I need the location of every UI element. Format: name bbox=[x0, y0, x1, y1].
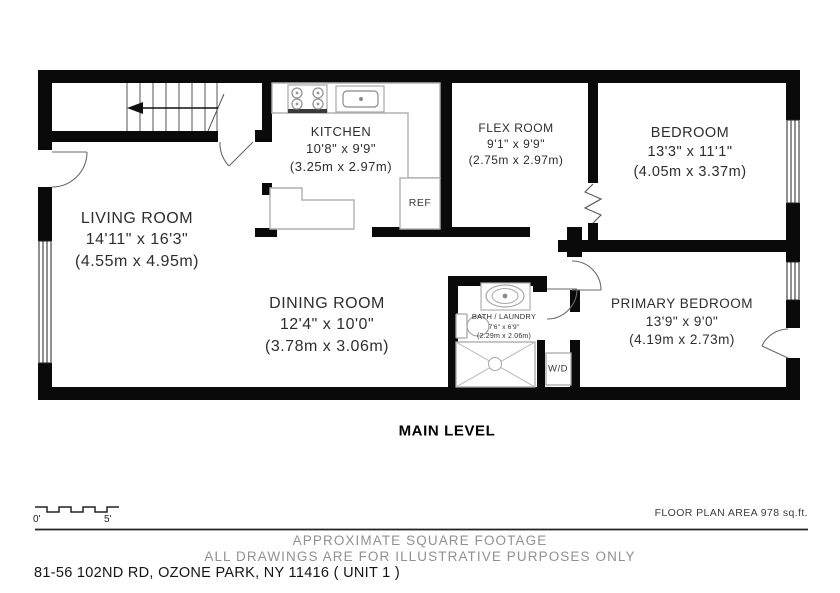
flex-bedroom-opening-break bbox=[585, 184, 601, 223]
room-label-primary-bedroom: PRIMARY BEDROOM 13'9" x 9'0" (4.19m x 2.… bbox=[611, 295, 753, 349]
room-dimensions-metric: (4.05m x 3.37m) bbox=[633, 163, 746, 182]
property-address: 81-56 102ND RD, OZONE PARK, NY 11416 ( U… bbox=[34, 565, 400, 581]
room-label-living-room: LIVING ROOM 14'11" x 16'3" (4.55m x 4.95… bbox=[75, 208, 199, 272]
refrigerator-label: REF bbox=[409, 197, 432, 209]
scale-start-label: 0' bbox=[33, 514, 40, 525]
room-label-bath-laundry: BATH / LAUNDRY 7'6" x 6'9" (2.29m x 2.06… bbox=[472, 312, 536, 342]
exterior-side-door bbox=[762, 329, 788, 358]
room-dimensions-imperial: 7'6" x 6'9" bbox=[472, 323, 536, 332]
primary-bedroom-door bbox=[572, 261, 601, 290]
room-name: DINING ROOM bbox=[265, 293, 389, 314]
room-dimensions-metric: (2.75m x 2.97m) bbox=[469, 153, 564, 169]
room-dimensions-imperial: 9'1" x 9'9" bbox=[469, 137, 564, 153]
floor-plan-area-note: FLOOR PLAN AREA 978 sq.ft. bbox=[655, 507, 808, 519]
stair-arrow-icon bbox=[127, 102, 143, 114]
staircase bbox=[127, 83, 224, 131]
kitchen-peninsula-counter bbox=[270, 188, 354, 229]
room-dimensions-imperial: 10'8" x 9'9" bbox=[290, 140, 392, 157]
room-dimensions-metric: (4.55m x 4.95m) bbox=[75, 251, 199, 272]
room-name: FLEX ROOM bbox=[469, 121, 564, 137]
disclaimer-line-2: ALL DRAWINGS ARE FOR ILLUSTRATIVE PURPOS… bbox=[0, 549, 840, 564]
room-name: LIVING ROOM bbox=[75, 208, 199, 229]
entry-door bbox=[52, 152, 87, 187]
room-label-flex-room: FLEX ROOM 9'1" x 9'9" (2.75m x 2.97m) bbox=[469, 121, 564, 169]
bath-sink-icon bbox=[481, 283, 530, 310]
room-name: KITCHEN bbox=[290, 123, 392, 140]
level-title: MAIN LEVEL bbox=[399, 423, 496, 440]
scale-end-label: 5' bbox=[104, 514, 111, 525]
room-dimensions-imperial: 12'4" x 10'0" bbox=[265, 314, 389, 335]
room-dimensions-imperial: 13'3" x 11'1" bbox=[633, 143, 746, 162]
bedroom-window bbox=[787, 120, 799, 203]
kitchen-door bbox=[220, 142, 253, 166]
kitchen-sink-icon bbox=[336, 86, 384, 112]
room-label-bedroom: BEDROOM 13'3" x 11'1" (4.05m x 3.37m) bbox=[633, 124, 746, 182]
room-dimensions-metric: (4.19m x 2.73m) bbox=[611, 331, 753, 349]
primary-bedroom-window bbox=[787, 262, 799, 300]
room-dimensions-imperial: 14'11" x 16'3" bbox=[75, 229, 199, 250]
room-name: BEDROOM bbox=[633, 124, 746, 143]
room-dimensions-metric: (2.29m x 2.06m) bbox=[472, 332, 536, 342]
room-name: PRIMARY BEDROOM bbox=[611, 295, 753, 313]
stove-icon bbox=[288, 85, 327, 113]
scale-bar bbox=[35, 507, 119, 512]
room-label-dining-room: DINING ROOM 12'4" x 10'0" (3.78m x 3.06m… bbox=[265, 293, 389, 357]
floor-plan-page: LIVING ROOM 14'11" x 16'3" (4.55m x 4.95… bbox=[0, 0, 840, 593]
room-dimensions-metric: (3.25m x 2.97m) bbox=[290, 158, 392, 175]
room-name: BATH / LAUNDRY bbox=[472, 312, 536, 323]
living-room-window bbox=[39, 241, 51, 363]
disclaimer-line-1: APPROXIMATE SQUARE FOOTAGE bbox=[0, 533, 840, 548]
room-dimensions-metric: (3.78m x 3.06m) bbox=[265, 336, 389, 357]
washer-dryer-label: W/D bbox=[548, 364, 568, 375]
room-dimensions-imperial: 13'9" x 9'0" bbox=[611, 313, 753, 331]
room-label-kitchen: KITCHEN 10'8" x 9'9" (3.25m x 2.97m) bbox=[290, 123, 392, 175]
shower-icon bbox=[456, 342, 535, 387]
